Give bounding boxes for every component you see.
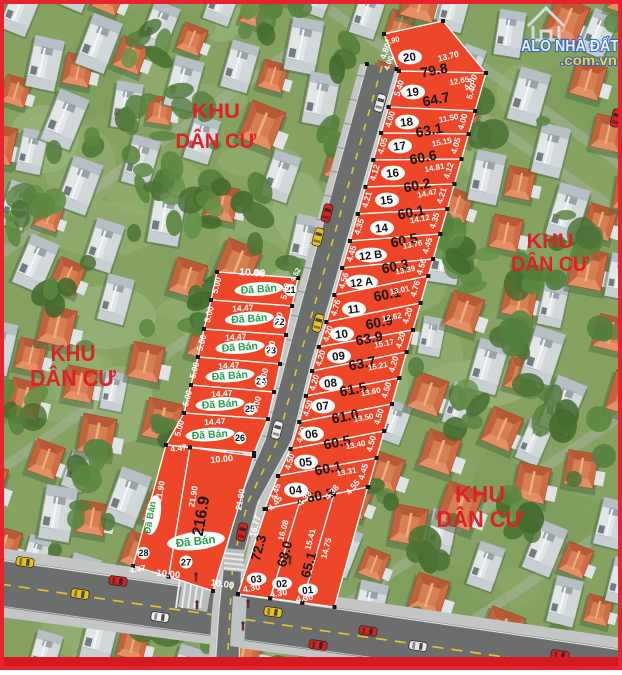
svg-text:27: 27 xyxy=(181,558,192,569)
svg-text:DÂN CƯ: DÂN CƯ xyxy=(437,505,525,532)
svg-text:08: 08 xyxy=(324,377,339,391)
svg-text:DÂN CƯ: DÂN CƯ xyxy=(176,129,258,153)
svg-text:14.47: 14.47 xyxy=(218,360,240,371)
svg-text:Đã Bán: Đã Bán xyxy=(211,369,248,383)
svg-text:20: 20 xyxy=(403,51,417,64)
svg-text:14: 14 xyxy=(375,222,390,236)
svg-text:KHU: KHU xyxy=(192,100,240,123)
svg-text:16: 16 xyxy=(386,167,400,180)
svg-text:Đã Bán: Đã Bán xyxy=(240,282,277,296)
svg-text:26: 26 xyxy=(235,433,245,443)
svg-text:17: 17 xyxy=(393,140,407,153)
svg-text:05: 05 xyxy=(299,456,314,470)
svg-text:10: 10 xyxy=(335,328,349,341)
svg-text:14.47: 14.47 xyxy=(232,302,254,313)
svg-text:KHU: KHU xyxy=(527,230,574,253)
svg-text:KHU: KHU xyxy=(51,340,96,366)
svg-text:KHU: KHU xyxy=(455,481,505,507)
svg-text:07: 07 xyxy=(316,400,330,413)
svg-text:.com.vn: .com.vn xyxy=(560,53,617,68)
svg-text:Đã Bán: Đã Bán xyxy=(201,397,238,411)
svg-text:Đã Bán: Đã Bán xyxy=(191,428,228,442)
svg-text:DÂN CƯ: DÂN CƯ xyxy=(30,364,117,391)
svg-text:28: 28 xyxy=(138,548,148,558)
svg-text:14.47: 14.47 xyxy=(204,416,226,427)
svg-text:09: 09 xyxy=(332,350,346,363)
svg-text:DÂN CƯ: DÂN CƯ xyxy=(511,252,590,276)
svg-text:18: 18 xyxy=(400,116,415,130)
svg-text:14.47: 14.47 xyxy=(211,388,233,399)
svg-text:11: 11 xyxy=(347,303,361,316)
svg-text:Đã Bán: Đã Bán xyxy=(231,312,268,326)
svg-text:15: 15 xyxy=(380,194,395,208)
svg-text:10.00: 10.00 xyxy=(239,266,266,280)
svg-text:14.47: 14.47 xyxy=(225,331,247,342)
svg-text:19: 19 xyxy=(406,86,420,99)
